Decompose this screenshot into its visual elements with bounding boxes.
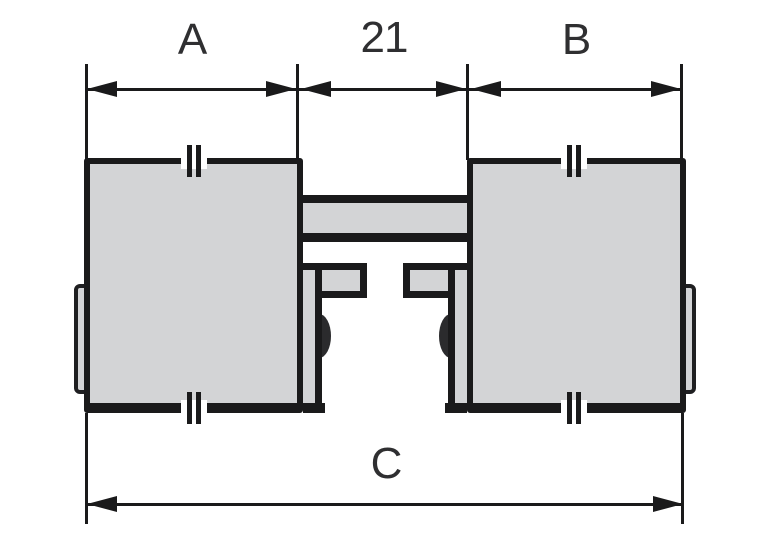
arrowhead-left-icon <box>471 81 501 97</box>
break-mark-top-left <box>183 145 205 177</box>
top-dimension-line <box>86 88 683 91</box>
break-mark-tick <box>567 392 572 424</box>
break-mark-tick <box>576 145 581 177</box>
dim-label-c: C <box>371 442 402 486</box>
right-mount-plate <box>448 263 467 403</box>
break-mark-gap <box>181 153 207 169</box>
break-mark-tick <box>187 392 192 424</box>
dim-label-a: A <box>178 18 206 62</box>
arrowhead-left-icon <box>301 81 331 97</box>
left-housing <box>84 158 303 413</box>
break-mark-tick <box>576 392 581 424</box>
extension-line-outer-left <box>85 64 88 160</box>
break-mark-bottom-right <box>563 392 585 424</box>
break-mark-gap <box>561 400 587 416</box>
technical-drawing-canvas: A 21 B <box>0 0 768 549</box>
extension-line-inner-right <box>466 64 469 160</box>
center-bracket-bar <box>303 195 467 242</box>
dim-label-21: 21 <box>361 16 408 60</box>
break-mark-tick <box>196 392 201 424</box>
break-mark-tick <box>196 145 201 177</box>
break-mark-gap <box>181 400 207 416</box>
arrowhead-left-icon <box>87 81 117 97</box>
left-mount-plate <box>303 263 322 403</box>
left-plate-cap <box>303 403 325 413</box>
extension-line-inner-left <box>296 64 299 160</box>
arrowhead-right-icon <box>436 81 466 97</box>
break-mark-tick <box>187 145 192 177</box>
break-mark-tick <box>567 145 572 177</box>
arrowhead-right-icon <box>266 81 296 97</box>
extension-line-outer-right <box>680 64 683 160</box>
break-mark-bottom-left <box>183 392 205 424</box>
dim-label-b: B <box>562 18 590 62</box>
arrowhead-right-icon <box>653 496 683 512</box>
bottom-dimension-line <box>86 503 684 506</box>
arrowhead-right-icon <box>651 81 681 97</box>
right-housing <box>467 158 686 413</box>
arrowhead-left-icon <box>87 496 117 512</box>
break-mark-top-right <box>563 145 585 177</box>
break-mark-gap <box>561 153 587 169</box>
right-plate-cap <box>445 403 467 413</box>
